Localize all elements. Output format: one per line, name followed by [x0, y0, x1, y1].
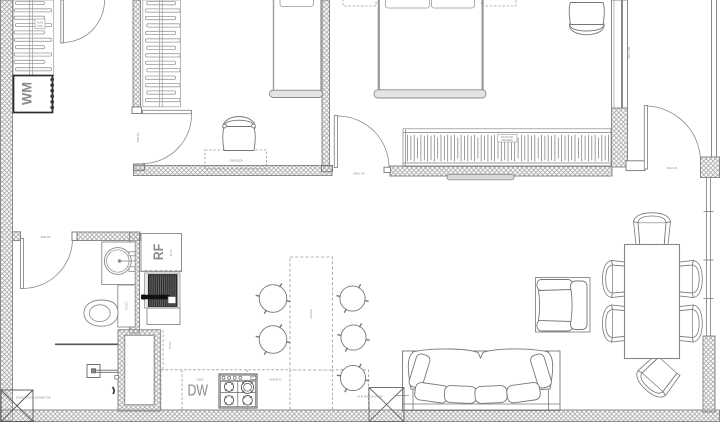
svg-text:RANGE 30: RANGE 30 [270, 379, 282, 382]
svg-text:WALK IN: WALK IN [667, 167, 677, 170]
svg-text:DOUBLE DOOR SHOWER TUB: DOUBLE DOOR SHOWER TUB [16, 396, 51, 399]
svg-text:RF: RF [151, 244, 166, 261]
svg-text:ISLAND: ISLAND [309, 309, 313, 318]
svg-text:TOILET: TOILET [126, 301, 129, 310]
svg-text:HANG: HANG [37, 25, 44, 28]
svg-text:24 RO: 24 RO [169, 342, 172, 349]
svg-text:WM: WM [19, 82, 35, 105]
svg-text:DW: DW [188, 383, 209, 400]
svg-text:2468 DR: 2468 DR [41, 236, 51, 239]
svg-text:CREDENZA: CREDENZA [229, 160, 243, 163]
svg-text:DW24: DW24 [197, 379, 204, 382]
svg-text:TALL CAB: TALL CAB [627, 47, 631, 59]
svg-text:36 RO: 36 RO [170, 249, 173, 256]
svg-text:2468 DR: 2468 DR [137, 132, 140, 142]
svg-text:HANGERS: HANGERS [501, 139, 513, 142]
svg-text:WALK DR: WALK DR [353, 172, 364, 175]
svg-text:22x60: 22x60 [37, 23, 44, 25]
